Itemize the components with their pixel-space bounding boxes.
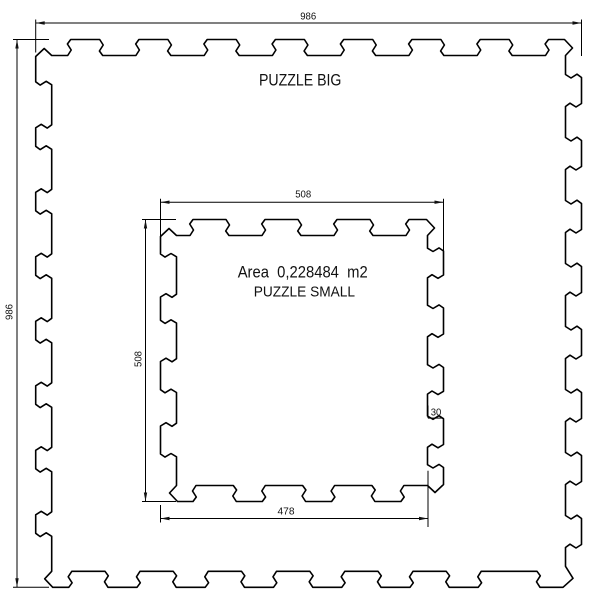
svg-text:508: 508 — [295, 188, 311, 200]
svg-text:986: 986 — [3, 304, 15, 320]
svg-text:30: 30 — [431, 407, 442, 419]
svg-text:508: 508 — [132, 351, 144, 367]
svg-text:Area 0,228484 m2: Area 0,228484 m2 — [238, 262, 368, 281]
svg-text:478: 478 — [278, 505, 295, 517]
svg-text:PUZZLE BIG: PUZZLE BIG — [259, 72, 342, 90]
svg-text:986: 986 — [300, 10, 316, 22]
svg-text:PUZZLE SMALL: PUZZLE SMALL — [254, 284, 355, 301]
